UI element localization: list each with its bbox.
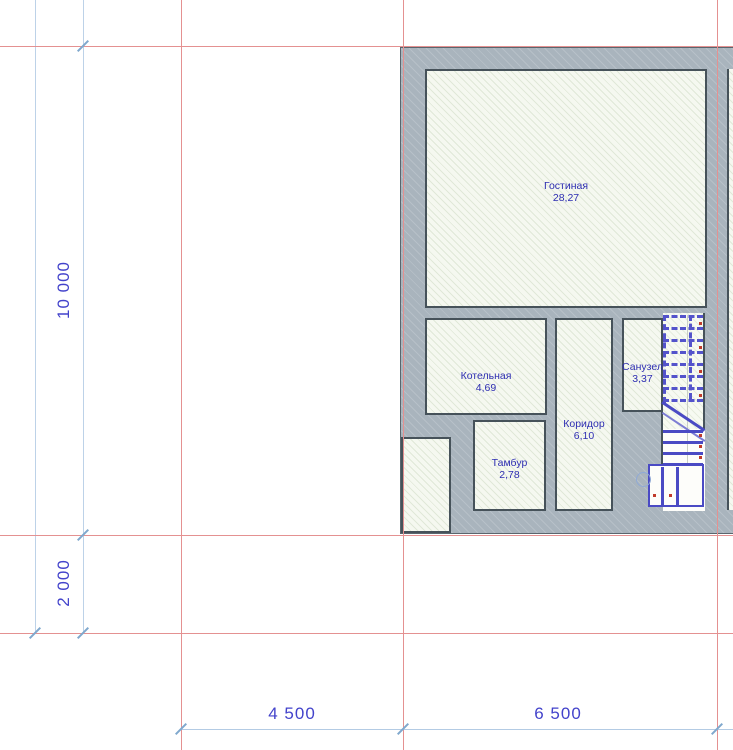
stair-step-mark [669, 494, 672, 497]
grid-line-vertical-right [717, 0, 718, 750]
stair-step-mark [699, 346, 702, 349]
room-label-sanuzel: Санузел 3,37 [622, 361, 663, 385]
stair-winder-tread [661, 467, 664, 507]
porch-area[interactable] [401, 437, 451, 533]
stair-winder-tread [676, 467, 679, 507]
room-label-tambur: Тамбур 2,78 [492, 457, 528, 481]
dim-extension-line-left-outer [35, 0, 36, 633]
room-area: 6,10 [563, 430, 604, 442]
room-tambur[interactable]: Тамбур 2,78 [473, 420, 546, 511]
stair-step-mark [699, 434, 702, 437]
grid-line-vertical-middle [403, 0, 404, 750]
stair-tread-dashed [663, 315, 703, 318]
grid-line-horizontal-bottom [0, 633, 733, 634]
dim-label-4500[interactable]: 4 500 [268, 704, 316, 724]
stair-walkline-start-circle [636, 472, 651, 487]
room-area: 4,69 [461, 382, 512, 394]
room-name: Тамбур [492, 457, 528, 469]
room-label-koridor: Коридор 6,10 [563, 418, 604, 442]
room-gostinaya[interactable]: Гостиная 28,27 [425, 69, 707, 308]
room-name: Гостиная [544, 180, 588, 192]
stair-tread-dashed [663, 363, 703, 366]
stair-tread-dashed [663, 387, 703, 390]
grid-line-horizontal-top [0, 46, 733, 47]
stair-step-mark [699, 322, 702, 325]
stair-step-mark [699, 370, 702, 373]
grid-line-vertical-left [181, 0, 182, 750]
stair-step-mark [699, 456, 702, 459]
room-area: 28,27 [544, 192, 588, 204]
room-koridor[interactable]: Коридор 6,10 [555, 318, 613, 511]
room-name: Коридор [563, 418, 604, 430]
room-label-gostinaya: Гостиная 28,27 [544, 180, 588, 204]
dim-label-10000[interactable]: 10 000 [54, 261, 74, 319]
adjacent-room-sliver [727, 69, 733, 510]
room-name: Котельная [461, 370, 512, 382]
stair-step-mark [699, 394, 702, 397]
stair-tread-solid [663, 430, 703, 433]
stair-tread-dashed [663, 375, 703, 378]
floor-plan-canvas: Гостиная 28,27 Котельная 4,69 Тамбур 2,7… [0, 0, 733, 750]
dim-label-6500[interactable]: 6 500 [534, 704, 582, 724]
room-kotelnaya[interactable]: Котельная 4,69 [425, 318, 547, 415]
room-label-kotelnaya: Котельная 4,69 [461, 370, 512, 394]
room-name: Санузел [622, 361, 663, 373]
grid-line-horizontal-middle [0, 535, 733, 536]
stair-stringer-dashed-mid [689, 315, 692, 399]
stair-tread-solid [663, 452, 703, 455]
staircase[interactable] [663, 313, 705, 511]
stair-tread-dashed [663, 399, 703, 402]
stair-tread-dashed [663, 339, 703, 342]
dim-line-left-vertical [83, 0, 84, 633]
dim-label-2000[interactable]: 2 000 [54, 559, 74, 607]
room-area: 3,37 [622, 373, 663, 385]
room-area: 2,78 [492, 469, 528, 481]
dim-line-bottom [181, 729, 733, 730]
room-sanuzel[interactable]: Санузел 3,37 [622, 318, 663, 412]
stair-step-mark [653, 494, 656, 497]
stair-tread-dashed [663, 327, 703, 330]
stair-step-mark [699, 445, 702, 448]
stair-tread-dashed [663, 351, 703, 354]
stair-tread-solid [663, 441, 703, 444]
stair-stringer-dashed-left [663, 315, 666, 403]
